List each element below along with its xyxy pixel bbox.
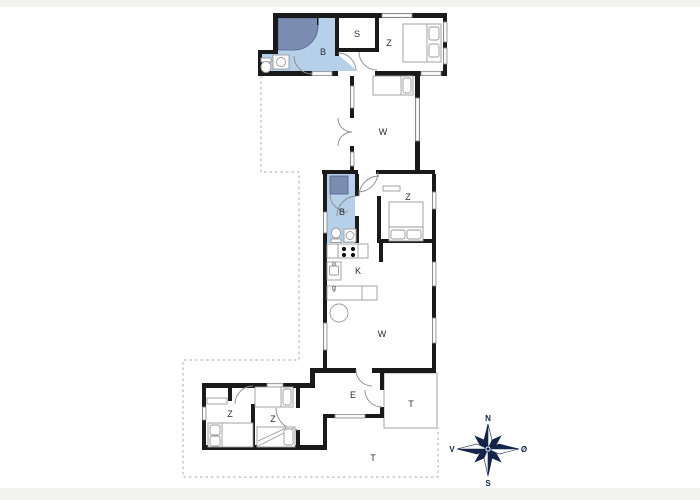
window — [324, 323, 328, 350]
room-label-entrance: E — [350, 390, 356, 400]
double-bed — [208, 423, 253, 447]
toilet — [261, 58, 271, 73]
room-label-bathroom-middle: B — [339, 207, 345, 217]
shower-middle — [330, 176, 348, 194]
bathroom-sink — [344, 229, 356, 242]
window — [203, 407, 207, 420]
door-arc — [338, 118, 352, 132]
door-arc — [365, 390, 382, 407]
window — [335, 415, 365, 419]
room-label-bedroom-top: Z — [386, 38, 392, 48]
room-label-storage: S — [354, 29, 360, 39]
room-label-bedroom-middle: Z — [405, 192, 411, 202]
window — [444, 48, 448, 64]
window — [382, 14, 412, 18]
window — [433, 262, 437, 286]
room-label-bedroom-left: Z — [227, 409, 233, 419]
window — [433, 192, 437, 209]
room-label-kitchen-note: g — [332, 285, 336, 292]
bathroom-sink — [273, 55, 289, 69]
shelf — [383, 186, 400, 191]
window — [351, 152, 355, 166]
toilet — [331, 228, 341, 243]
window — [351, 86, 355, 108]
door-arc — [356, 370, 372, 386]
shelf — [207, 398, 227, 404]
round-table — [330, 304, 348, 322]
room-label-terrace-south: T — [370, 453, 376, 463]
room-label-bedroom-right: Z — [270, 414, 276, 424]
kitchen-sink — [327, 262, 341, 280]
floor-plan-page: B S Z W B Z K g W Z Z E T T — [0, 0, 700, 500]
window — [444, 22, 448, 42]
room-label-terrace: T — [408, 399, 414, 409]
double-bed — [403, 24, 441, 62]
room-label-bathroom-top: B — [320, 47, 326, 57]
room-label-living-upper: W — [379, 127, 388, 137]
stove-counter — [327, 244, 368, 258]
window — [433, 318, 437, 343]
room-label-kitchen: K — [355, 266, 361, 276]
door-arc — [235, 386, 253, 404]
room-label-living-lower: W — [378, 329, 387, 339]
door-arc — [358, 172, 378, 192]
compass-east-label: Ø — [521, 445, 527, 454]
door-arc — [359, 52, 377, 70]
window — [312, 72, 332, 76]
compass-north-label: N — [485, 414, 491, 423]
window — [421, 72, 441, 76]
bunk-bed — [257, 427, 295, 447]
floor-plan-drawing: B S Z W B Z K g W Z Z E T T — [0, 0, 700, 500]
compass-west-label: V — [449, 445, 455, 454]
compass-rose-icon: N S V Ø — [449, 414, 527, 488]
door-arc — [338, 132, 352, 146]
door-arcs — [235, 52, 382, 430]
single-bed — [373, 76, 413, 95]
window — [416, 98, 420, 141]
double-bed — [389, 202, 423, 241]
single-bed — [255, 387, 293, 407]
window — [324, 212, 328, 233]
door-arc — [359, 176, 379, 196]
compass-south-label: S — [485, 479, 491, 488]
